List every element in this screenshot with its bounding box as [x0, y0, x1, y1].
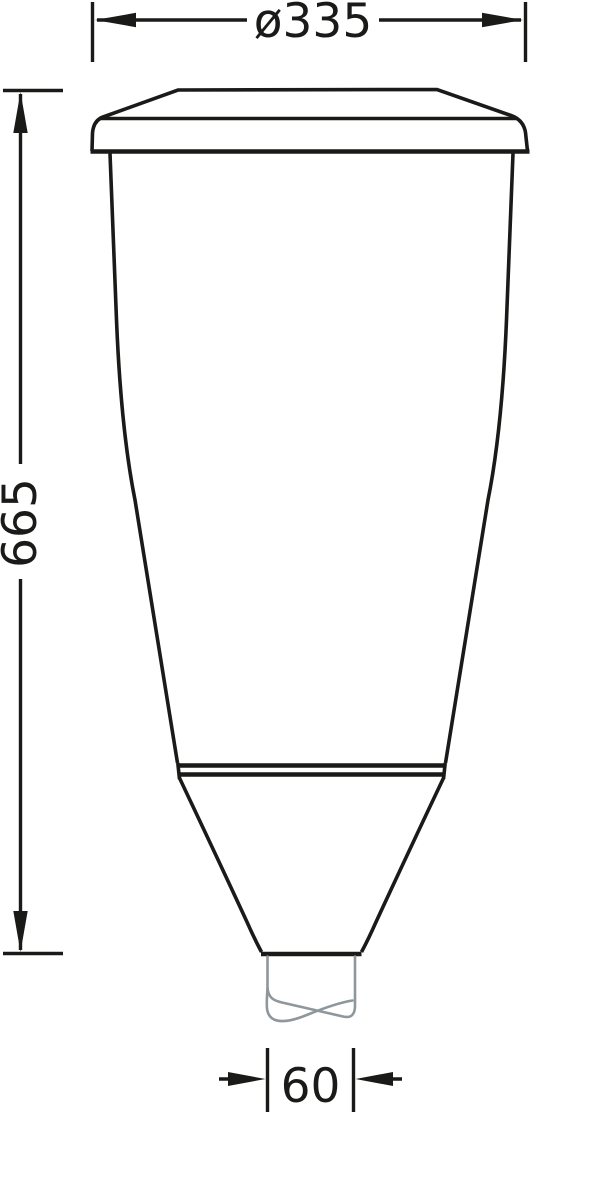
- dimension-outlet-width: 60: [219, 1048, 402, 1114]
- spigot-break: [267, 957, 355, 1022]
- arrow-right-icon: [482, 13, 523, 27]
- product-outline: [91, 90, 530, 955]
- spigot-left-edge-break: [267, 957, 353, 1022]
- arrow-left-inward-icon: [356, 1072, 394, 1086]
- body-left-edge: [110, 154, 178, 764]
- arrow-up-icon: [13, 92, 27, 133]
- dimension-height: 665: [0, 91, 63, 954]
- arrow-right-inward-icon: [228, 1072, 266, 1086]
- rim-band-right-side: [444, 763, 446, 779]
- height-label: 665: [0, 478, 48, 568]
- dimension-diameter: ø335: [93, 0, 526, 62]
- diameter-label: ø335: [254, 0, 372, 49]
- rim-band-left-side: [178, 763, 180, 779]
- funnel-right-edge: [362, 778, 444, 952]
- spigot-right-edge-break: [268, 957, 356, 1017]
- technical-drawing-canvas: ø335 665: [0, 0, 606, 1200]
- body-right-edge: [446, 154, 514, 764]
- funnel-left-edge: [180, 778, 262, 952]
- luminaire-dimension-drawing: ø335 665: [0, 0, 606, 1200]
- arrow-left-icon: [95, 13, 136, 27]
- arrow-down-icon: [13, 911, 27, 952]
- outlet-width-label: 60: [281, 1059, 341, 1114]
